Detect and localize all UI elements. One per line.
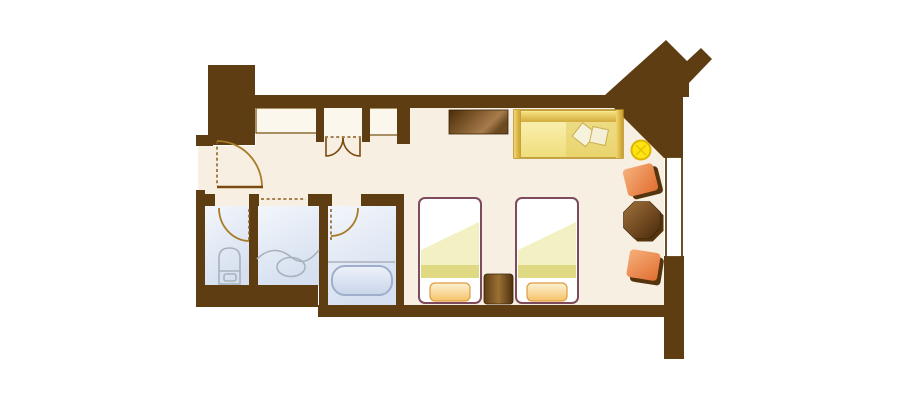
floor-vanity-room <box>258 206 320 286</box>
floor-plan <box>0 0 910 400</box>
bed-1-pillow <box>430 283 470 301</box>
wall-block-top-left <box>208 65 255 145</box>
sofa-arm-right <box>616 110 623 158</box>
wall-divider-vanity-bath <box>319 206 328 306</box>
chair-2-seat <box>626 249 661 282</box>
alcove <box>369 108 398 135</box>
lounge-chair-2 <box>625 249 665 286</box>
sofa-arm-left <box>514 110 521 158</box>
bed-2-pillow <box>527 283 567 301</box>
nightstand <box>484 274 513 304</box>
wall-pillar-3 <box>397 108 410 144</box>
wall-bottom <box>318 305 684 317</box>
wall-right-lower <box>664 256 684 317</box>
right-window <box>666 157 682 257</box>
wall-right-stub <box>664 317 684 359</box>
wall-pillar-2 <box>362 108 370 142</box>
bed-1 <box>419 198 481 303</box>
wall-bath-right <box>396 194 404 317</box>
bathtub <box>328 262 395 295</box>
floor-lamp <box>632 141 651 160</box>
wall-divider-toilet-vanity <box>249 206 258 286</box>
closet-interior <box>323 108 362 137</box>
wall-pillar-1 <box>316 108 324 142</box>
wall-bath-top-1 <box>196 194 215 206</box>
luggage-rack <box>256 108 317 133</box>
wall-top <box>255 95 632 108</box>
tub-basin <box>332 266 392 295</box>
wall-bottom-left <box>196 285 318 307</box>
sofa-cushion-2 <box>590 127 609 146</box>
bed-2-blanket-band <box>518 265 576 278</box>
dresser <box>449 110 508 134</box>
bed-2 <box>516 198 578 303</box>
sofa <box>514 110 623 158</box>
sofa-back <box>521 112 617 122</box>
table-top <box>624 202 661 239</box>
wall-bath-top-3 <box>308 194 332 206</box>
wall-bath-top-2 <box>249 194 259 206</box>
wall-entry-jamb <box>196 135 213 146</box>
bed-1-blanket-band <box>421 265 479 278</box>
